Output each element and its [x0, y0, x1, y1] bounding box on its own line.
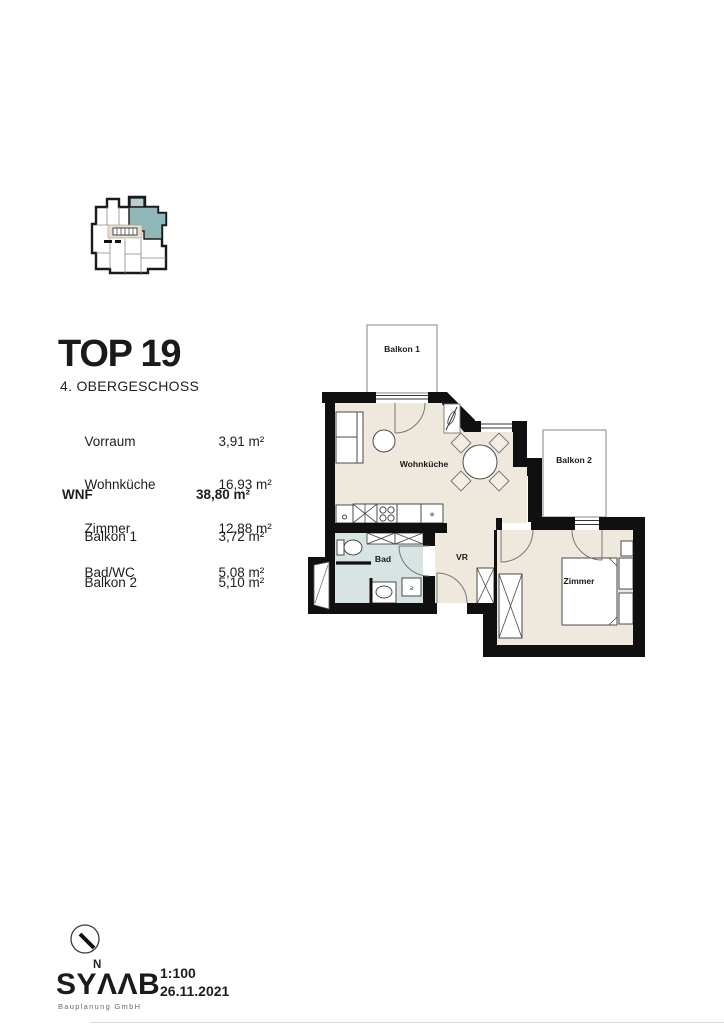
bottom-rule — [90, 1022, 724, 1023]
scale-date-block: 1:100 26.11.2021 — [160, 965, 229, 1000]
total-label: WNF — [62, 488, 196, 503]
label-wohnkueche: Wohnküche — [400, 459, 449, 469]
svg-text:≥: ≥ — [410, 585, 414, 592]
label-zimmer: Zimmer — [563, 576, 595, 586]
sofa-symbol — [336, 412, 363, 463]
washing-machine-symbol: ≥ — [402, 578, 421, 596]
balcony1-window — [373, 392, 431, 403]
area-row: Vorraum3,91 m² — [62, 420, 272, 464]
room-name: Balkon 2 — [85, 575, 219, 590]
room-area: 3,72 m² — [219, 529, 265, 544]
apartment-floor-plan: ✳ ≥ — [305, 320, 665, 660]
company-logo: SYΛΛB — [56, 970, 160, 1000]
shelf-symbol — [621, 541, 633, 556]
plan-mark — [115, 240, 121, 243]
room-name: Vorraum — [85, 435, 219, 450]
balcony2-door-sill — [572, 517, 602, 530]
shaft-niche — [314, 562, 329, 609]
page-subtitle: 4. OBERGESCHOSS — [60, 378, 199, 394]
room-area: 5,10 m² — [219, 575, 265, 590]
shaft-symbol — [367, 533, 423, 544]
diagonal-niche — [444, 404, 460, 433]
label-balkon2: Balkon 2 — [556, 455, 592, 465]
room-name: Balkon 1 — [85, 529, 219, 544]
wc-symbol — [337, 540, 362, 555]
drawing-date: 26.11.2021 — [160, 983, 229, 1001]
balcony-area-rows: Balkon 13,72 m² Balkon 25,10 m² — [62, 514, 264, 605]
north-arrow-icon: N — [60, 916, 120, 976]
vr-wardrobe-symbol — [477, 568, 494, 604]
fridge-star-glyph: ✳ — [429, 511, 435, 519]
building-overview-plan — [85, 192, 178, 278]
floorplan-sheet: TOP 19 4. OBERGESCHOSS Vorraum3,91 m² Wo… — [0, 0, 724, 1024]
total-area-row: WNF38,80 m² — [62, 488, 250, 503]
kitchen-counter-symbol — [336, 504, 443, 523]
balkon1-outline — [367, 325, 437, 393]
area-row: Balkon 25,10 m² — [62, 560, 264, 606]
total-value: 38,80 m² — [196, 488, 250, 503]
washbasin-symbol — [372, 582, 396, 603]
label-balkon1: Balkon 1 — [384, 344, 420, 354]
side-table-symbol — [373, 430, 395, 452]
room-area: 3,91 m² — [219, 435, 265, 450]
company-logo-subline: Bauplanung GmbH — [58, 1002, 141, 1011]
label-vr: VR — [456, 552, 469, 562]
label-bad: Bad — [375, 554, 391, 564]
area-row: Balkon 13,72 m² — [62, 514, 264, 560]
page-title: TOP 19 — [58, 333, 180, 376]
zimmer-wardrobe-symbol — [499, 574, 522, 638]
highlight-balcony-stub — [130, 198, 144, 207]
balkon2-outline — [543, 430, 606, 517]
drawing-scale: 1:100 — [160, 965, 229, 983]
plan-mark — [104, 240, 112, 243]
stair-flight — [113, 228, 137, 235]
side-window — [478, 421, 515, 432]
